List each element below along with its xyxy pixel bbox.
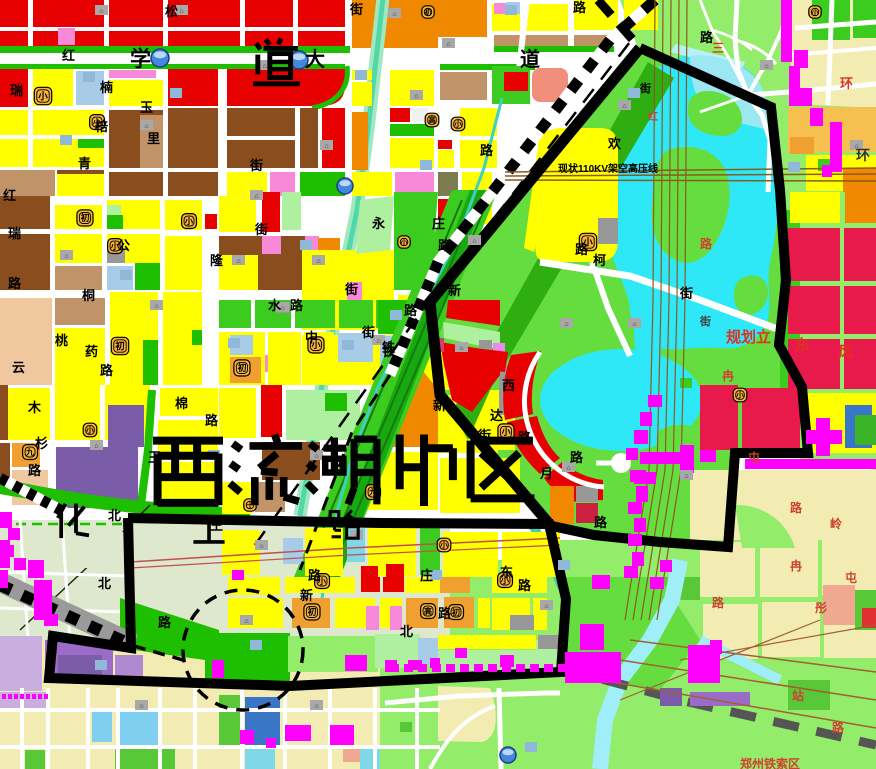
svg-text:北: 北 (108, 508, 121, 523)
svg-text:北: 北 (400, 624, 413, 639)
svg-text:大: 大 (305, 48, 325, 71)
svg-text:⌂: ⌂ (64, 253, 68, 260)
svg-text:路: 路 (28, 463, 42, 478)
svg-text:⌂: ⌂ (472, 238, 476, 245)
svg-text:⌂: ⌂ (254, 193, 258, 200)
svg-text:水: 水 (268, 298, 282, 313)
svg-text:三: 三 (712, 41, 724, 55)
svg-text:⌂: ⌂ (94, 443, 98, 450)
svg-text:王: 王 (210, 518, 223, 533)
svg-text:环: 环 (856, 147, 870, 163)
svg-text:⌂: ⌂ (392, 11, 396, 18)
svg-text:木: 木 (27, 400, 42, 415)
svg-text:道: 道 (520, 47, 540, 71)
svg-text:月: 月 (539, 466, 553, 481)
svg-text:路: 路 (575, 242, 589, 257)
svg-text:庄: 庄 (420, 568, 433, 583)
svg-text:路: 路 (712, 595, 725, 610)
svg-text:风: 风 (838, 344, 853, 361)
svg-text:⌂: ⌂ (459, 345, 463, 352)
svg-text:⌂: ⌂ (236, 258, 240, 265)
svg-text:公: 公 (117, 238, 130, 253)
svg-text:⌂: ⌂ (564, 321, 568, 328)
svg-text:⌂: ⌂ (376, 338, 380, 345)
svg-text:路: 路 (290, 298, 304, 313)
svg-text:棉: 棉 (175, 396, 188, 411)
svg-text:规划立: 规划立 (726, 328, 771, 346)
svg-text:新: 新 (448, 283, 461, 298)
svg-text:路: 路 (480, 143, 494, 158)
svg-text:里: 里 (147, 131, 160, 146)
svg-text:⌂: ⌂ (684, 473, 688, 480)
svg-text:岭: 岭 (830, 516, 842, 531)
svg-text:⌂: ⌂ (154, 303, 158, 310)
svg-text:彤: 彤 (815, 601, 827, 615)
svg-text:学: 学 (130, 47, 151, 71)
svg-text:松: 松 (165, 4, 178, 19)
svg-text:棓: 棓 (95, 119, 108, 134)
svg-text:街: 街 (639, 81, 651, 95)
svg-text:隆: 隆 (210, 253, 224, 268)
svg-text:路: 路 (205, 413, 219, 428)
svg-text:初: 初 (115, 341, 125, 353)
svg-text:初: 初 (308, 606, 317, 617)
svg-text:⌂: ⌂ (144, 123, 148, 130)
svg-text:屯: 屯 (845, 570, 857, 585)
svg-text:铁: 铁 (381, 344, 395, 359)
svg-text:初: 初 (425, 8, 432, 17)
svg-text:小: 小 (37, 91, 48, 103)
svg-text:冉: 冉 (790, 558, 802, 573)
svg-text:北: 北 (98, 576, 111, 591)
svg-text:街: 街 (361, 325, 375, 340)
svg-text:杉: 杉 (35, 436, 48, 451)
svg-text:站: 站 (792, 688, 804, 703)
svg-text:桐: 桐 (82, 288, 95, 303)
svg-text:瑞: 瑞 (8, 226, 21, 241)
svg-text:冉: 冉 (722, 368, 734, 383)
svg-text:初: 初 (452, 607, 460, 617)
svg-text:⌂: ⌂ (314, 453, 318, 460)
svg-text:⌂: ⌂ (280, 305, 284, 312)
svg-text:现状110KV架空高压线: 现状110KV架空高压线 (558, 162, 658, 175)
svg-text:瑞: 瑞 (10, 83, 23, 98)
svg-text:⌂: ⌂ (259, 543, 263, 550)
svg-text:街: 街 (249, 158, 263, 173)
svg-text:⌂: ⌂ (764, 63, 768, 70)
svg-text:中: 中 (305, 330, 318, 345)
svg-text:街: 街 (699, 314, 711, 328)
svg-text:路: 路 (308, 568, 322, 583)
svg-text:路: 路 (700, 236, 713, 251)
svg-text:东: 东 (795, 336, 810, 354)
svg-text:初: 初 (81, 212, 90, 223)
svg-text:⌂: ⌂ (139, 703, 143, 710)
svg-text:路: 路 (8, 276, 22, 291)
svg-text:路: 路 (790, 500, 803, 515)
svg-text:路: 路 (404, 303, 418, 318)
svg-text:新: 新 (433, 398, 446, 413)
svg-text:路: 路 (570, 450, 584, 465)
svg-text:郑州铁索区: 郑州铁索区 (740, 756, 800, 769)
svg-text:高: 高 (428, 115, 436, 125)
svg-text:路: 路 (832, 720, 845, 735)
svg-text:小: 小 (86, 425, 94, 435)
svg-text:⌂: ⌂ (244, 618, 248, 625)
svg-text:东: 东 (500, 565, 513, 580)
svg-text:路: 路 (573, 0, 587, 15)
svg-text:九: 九 (25, 447, 35, 457)
svg-text:云: 云 (12, 360, 25, 375)
svg-text:⌂: ⌂ (99, 8, 103, 15)
svg-text:王: 王 (148, 450, 161, 465)
svg-text:⌂: ⌂ (622, 103, 626, 110)
svg-text:屯: 屯 (748, 450, 760, 465)
svg-text:小: 小 (502, 426, 511, 437)
svg-text:楠: 楠 (99, 80, 113, 95)
svg-text:街: 街 (344, 282, 358, 297)
svg-text:小: 小 (811, 8, 819, 17)
svg-text:红: 红 (3, 188, 16, 203)
svg-text:药: 药 (85, 344, 98, 359)
svg-text:⌂: ⌂ (316, 258, 320, 265)
svg-text:街: 街 (349, 2, 363, 17)
svg-text:玉: 玉 (140, 100, 153, 115)
svg-text:初: 初 (238, 362, 247, 373)
svg-text:柯: 柯 (593, 253, 606, 268)
svg-text:小: 小 (454, 119, 462, 129)
svg-text:街: 街 (254, 222, 268, 237)
svg-text:路: 路 (100, 363, 114, 378)
svg-text:高: 高 (424, 606, 432, 616)
svg-text:欢: 欢 (607, 136, 622, 151)
svg-text:⌂: ⌂ (544, 603, 548, 610)
svg-text:小: 小 (184, 216, 194, 226)
svg-text:红: 红 (648, 110, 658, 123)
svg-text:新: 新 (300, 588, 313, 603)
svg-text:路: 路 (438, 238, 452, 253)
svg-text:路: 路 (438, 606, 452, 621)
svg-text:永: 永 (371, 216, 386, 231)
svg-text:⌂: ⌂ (324, 143, 328, 150)
svg-text:⌂: ⌂ (566, 465, 570, 472)
svg-text:⌂: ⌂ (262, 63, 266, 70)
svg-text:⌂: ⌂ (179, 8, 183, 15)
svg-text:街: 街 (679, 286, 693, 301)
svg-text:桃: 桃 (55, 333, 68, 348)
svg-text:⌂: ⌂ (314, 703, 318, 710)
svg-text:青: 青 (78, 156, 91, 171)
svg-text:⌂: ⌂ (632, 321, 636, 328)
svg-text:⌂: ⌂ (414, 93, 418, 100)
svg-text:路: 路 (518, 430, 532, 445)
svg-text:小: 小 (440, 540, 448, 550)
svg-text:路: 路 (158, 615, 172, 630)
svg-text:街: 街 (477, 428, 491, 443)
svg-text:⌂: ⌂ (446, 41, 450, 48)
svg-text:路: 路 (594, 515, 608, 530)
svg-text:路: 路 (518, 578, 532, 593)
svg-text:红: 红 (62, 48, 75, 63)
svg-text:达: 达 (490, 408, 503, 423)
svg-text:西: 西 (502, 378, 515, 393)
svg-text:庄: 庄 (432, 216, 445, 231)
svg-text:小: 小 (400, 238, 408, 247)
svg-text:环: 环 (840, 76, 853, 91)
svg-text:小: 小 (736, 390, 744, 400)
